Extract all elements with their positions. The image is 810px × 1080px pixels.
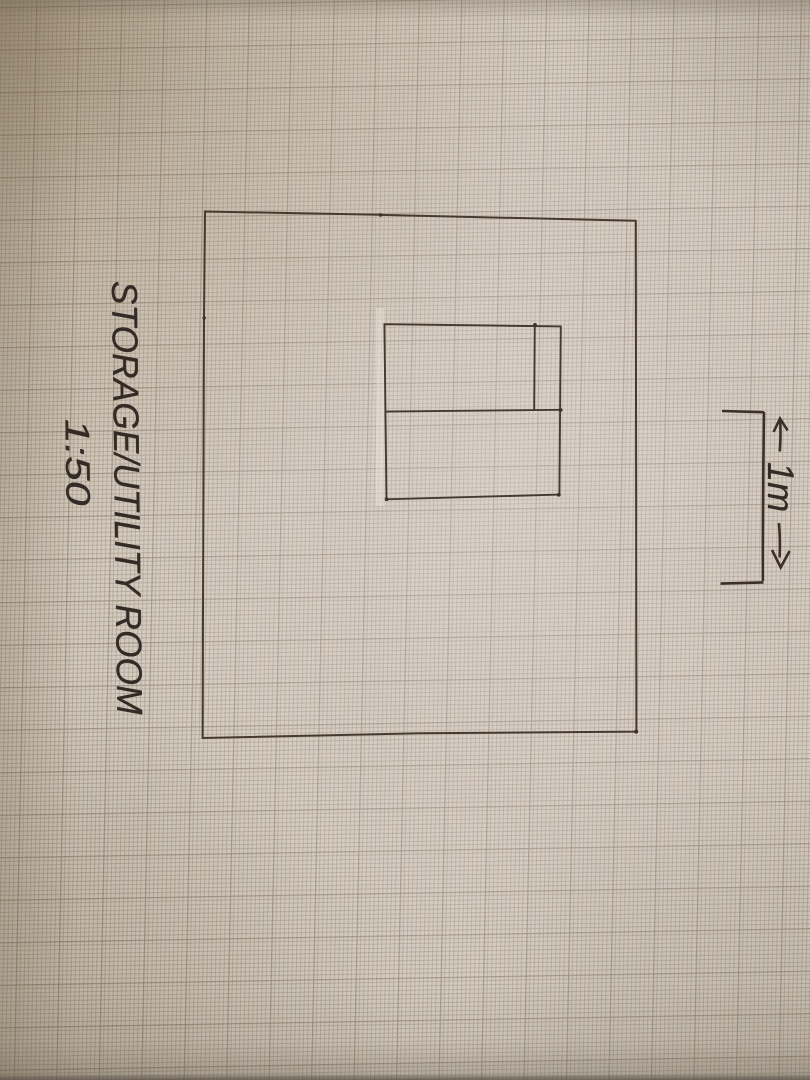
svg-text:1m: 1m xyxy=(759,462,800,512)
svg-text:STORAGE/UTILITY ROOM: STORAGE/UTILITY ROOM xyxy=(104,281,150,716)
svg-text:1:50: 1:50 xyxy=(58,419,98,507)
